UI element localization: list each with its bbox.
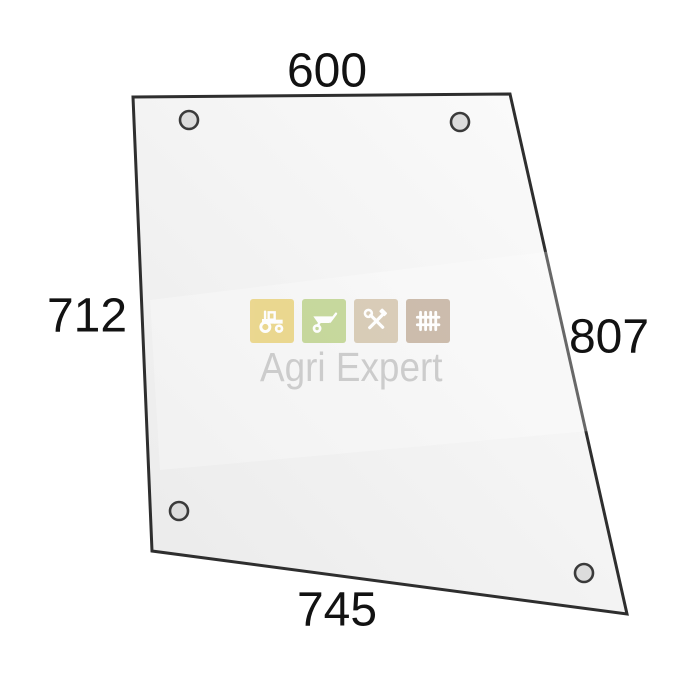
watermark-icon-row bbox=[250, 299, 450, 343]
fence-icon bbox=[406, 299, 450, 343]
mounting-hole-top-right bbox=[451, 113, 469, 131]
dimension-label-bottom: 745 bbox=[297, 583, 377, 638]
dimension-label-right: 807 bbox=[569, 310, 649, 365]
wheelbarrow-icon bbox=[302, 299, 346, 343]
diagram-canvas: 600 712 807 745 bbox=[0, 0, 700, 700]
watermark: Agri Expert bbox=[250, 299, 450, 391]
tools-icon bbox=[354, 299, 398, 343]
mounting-hole-bottom-right bbox=[575, 564, 593, 582]
watermark-text: Agri Expert bbox=[260, 344, 440, 391]
dimension-label-top: 600 bbox=[287, 44, 367, 99]
mounting-hole-bottom-left bbox=[170, 502, 188, 520]
tractor-icon bbox=[250, 299, 294, 343]
dimension-label-left: 712 bbox=[47, 289, 127, 344]
mounting-hole-top-left bbox=[180, 111, 198, 129]
